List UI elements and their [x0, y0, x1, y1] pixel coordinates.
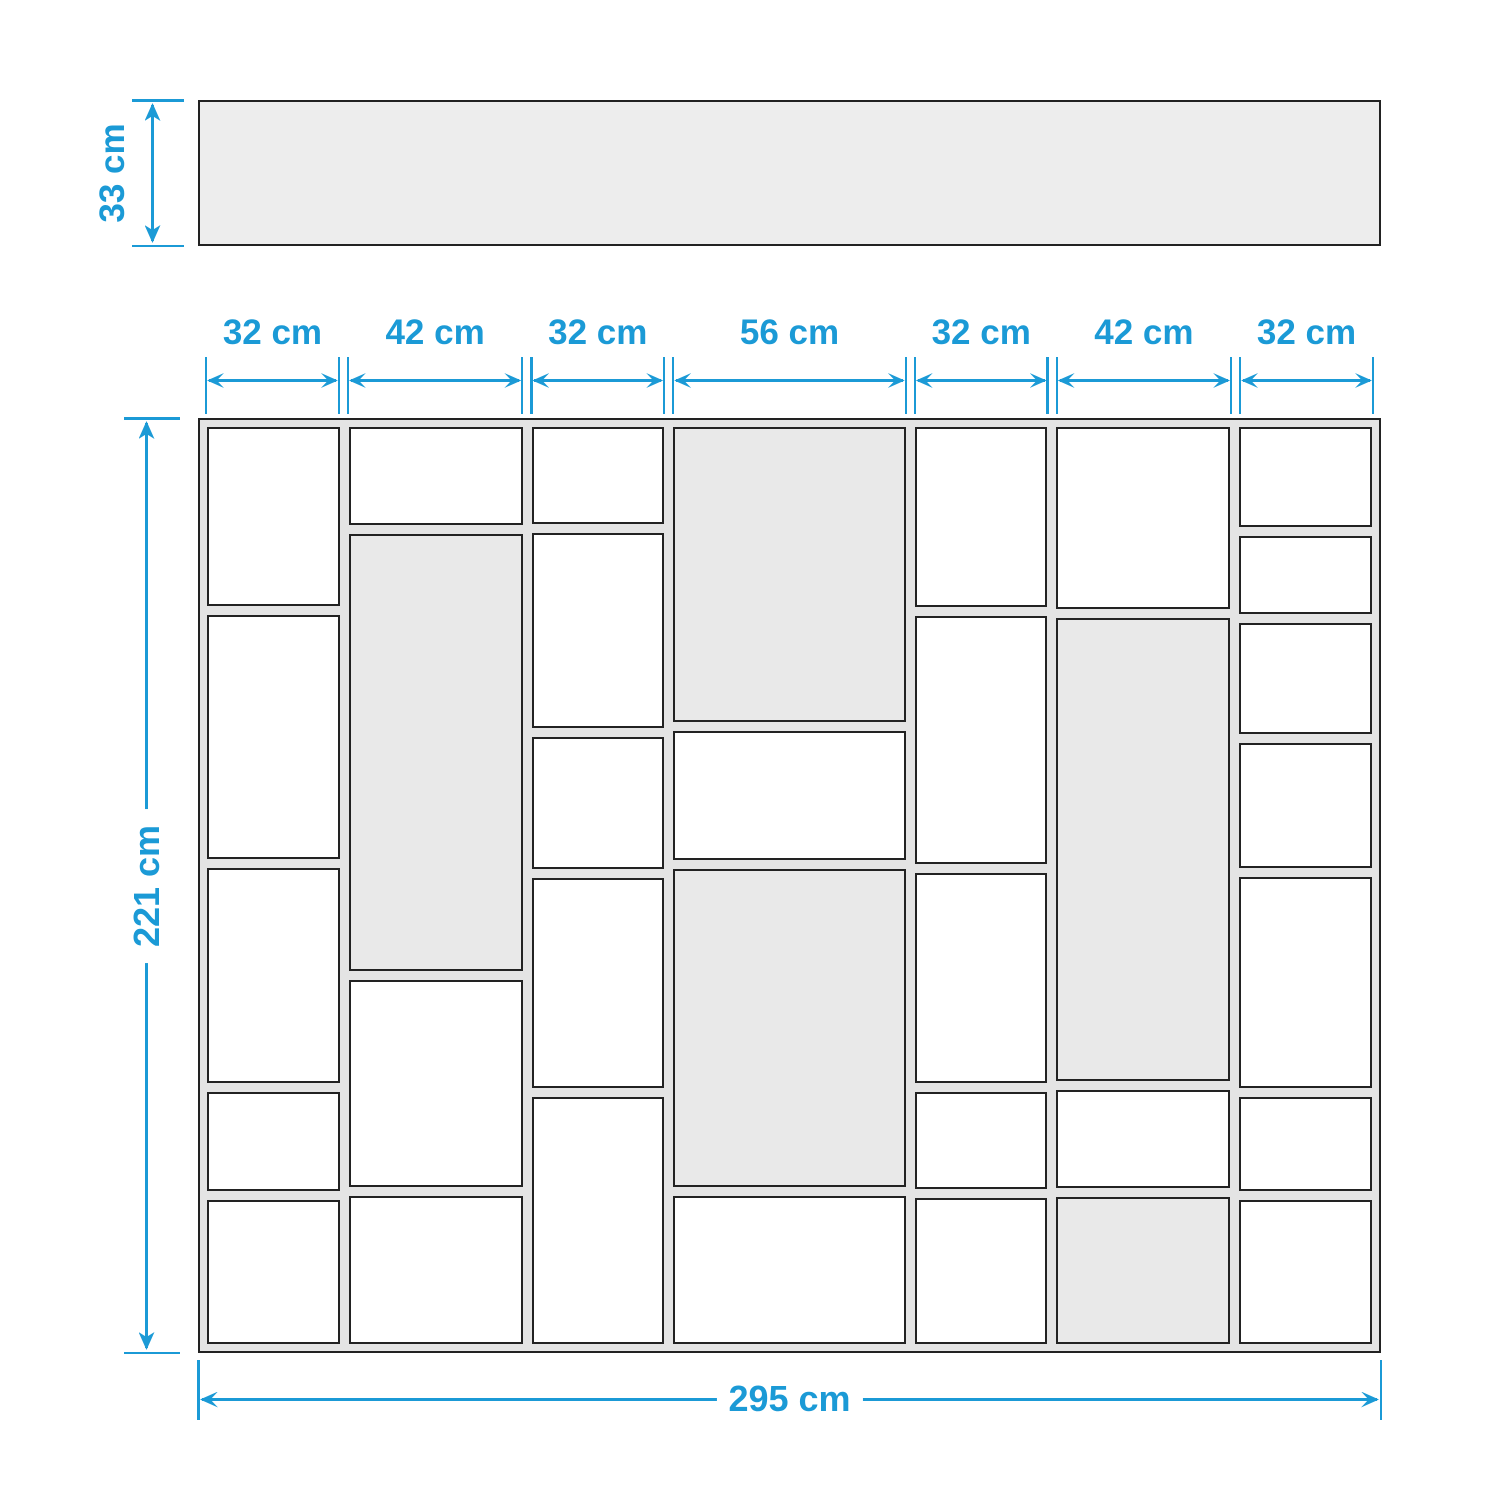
shelf-cell — [349, 427, 523, 525]
shelf-cell — [915, 873, 1048, 1083]
column-width-label: 32 cm — [1240, 313, 1373, 353]
dim-line — [351, 379, 519, 382]
dim-tick-right — [1380, 1360, 1383, 1420]
column-width-label: 56 cm — [673, 313, 906, 353]
shelf-cell — [673, 1196, 905, 1344]
dim-line — [151, 105, 154, 241]
dim-tick-left — [672, 357, 674, 414]
column-width-label: 42 cm — [1057, 313, 1231, 353]
dim-tick-left — [197, 1360, 200, 1420]
shelf-cell — [1056, 1090, 1230, 1188]
dim-tick-right — [1230, 357, 1232, 414]
height-dimension: 221 cm — [118, 418, 182, 1353]
shelf-column — [673, 427, 905, 1344]
shelf-cell — [1239, 1097, 1372, 1191]
shelf-cell — [532, 1097, 665, 1344]
dim-tick-bottom — [124, 1352, 180, 1355]
dim-tick-left — [1056, 357, 1058, 414]
shelf-cell-shaded — [673, 427, 905, 722]
column-dimension-span: 42 cm — [348, 313, 522, 414]
height-label: 221 cm — [126, 808, 168, 962]
column-width-label: 42 cm — [348, 313, 522, 353]
depth-dimension: 33 cm — [128, 100, 184, 246]
shelf-cell — [1239, 427, 1372, 527]
shelf-cell — [207, 1200, 340, 1344]
shelf-cell — [915, 616, 1048, 864]
dim-line — [209, 379, 336, 382]
dim-tick-right — [663, 357, 665, 414]
top-view-panel — [198, 100, 1381, 246]
shelf-cell — [532, 427, 665, 524]
shelf-cell — [1239, 623, 1372, 733]
shelf-cell — [915, 1092, 1048, 1189]
column-dimension-span: 56 cm — [673, 313, 906, 414]
shelf-cell — [1239, 536, 1372, 615]
dimension-diagram-page: { "diagram": { "colors": { "accent": "#1… — [0, 0, 1500, 1500]
dim-tick-right — [338, 357, 340, 414]
shelf-cell — [1239, 743, 1372, 868]
shelf-column — [532, 427, 665, 1344]
shelf-column — [1056, 427, 1230, 1344]
dim-line — [918, 379, 1045, 382]
width-label: 295 cm — [716, 1378, 862, 1420]
dim-tick-left — [530, 357, 532, 414]
dim-tick-top — [124, 417, 180, 420]
shelf-cell — [915, 1198, 1048, 1344]
column-dimension-span: 32 cm — [531, 313, 664, 414]
column-width-label: 32 cm — [915, 313, 1048, 353]
dim-tick-right — [905, 357, 907, 414]
shelf-cell-shaded — [673, 869, 905, 1187]
column-dimension-span: 42 cm — [1057, 313, 1231, 414]
shelf-column — [915, 427, 1048, 1344]
shelf-cell — [1056, 427, 1230, 609]
dim-line — [534, 379, 661, 382]
dim-tick-left — [1239, 357, 1241, 414]
column-width-label: 32 cm — [531, 313, 664, 353]
shelf-cell-shaded — [349, 534, 523, 972]
shelf-cell — [915, 427, 1048, 607]
dim-tick-left — [205, 357, 207, 414]
shelf-column — [207, 427, 340, 1344]
shelf-cell — [349, 1196, 523, 1344]
shelf-cell — [207, 427, 340, 606]
shelf-cell — [673, 731, 905, 860]
shelf-column — [349, 427, 523, 1344]
dim-tick-right — [1372, 357, 1374, 414]
shelf-cell — [1239, 1200, 1372, 1344]
shelf-cell-shaded — [1056, 1197, 1230, 1344]
shelf-cell — [1239, 877, 1372, 1088]
shelf-cell — [207, 615, 340, 859]
shelf-cell — [532, 533, 665, 728]
shelf-cell — [532, 878, 665, 1088]
dim-line — [1060, 379, 1228, 382]
depth-label: 33 cm — [93, 123, 133, 222]
dim-line — [1243, 379, 1370, 382]
dim-tick-bottom — [132, 245, 184, 248]
width-dimension: 295 cm — [198, 1360, 1381, 1424]
shelf-cell — [532, 737, 665, 868]
column-width-dimensions: 32 cm42 cm32 cm56 cm32 cm42 cm32 cm — [198, 313, 1381, 414]
shelf-cell — [207, 868, 340, 1083]
shelf-cell — [207, 1092, 340, 1191]
dim-tick-top — [132, 99, 184, 102]
column-dimension-span: 32 cm — [206, 313, 339, 414]
dim-tick-left — [347, 357, 349, 414]
shelf-cell-shaded — [1056, 618, 1230, 1081]
dim-tick-right — [1046, 357, 1048, 414]
shelf-cell — [349, 980, 523, 1186]
dim-line — [676, 379, 903, 382]
column-dimension-span: 32 cm — [1240, 313, 1373, 414]
dim-tick-left — [914, 357, 916, 414]
column-width-label: 32 cm — [206, 313, 339, 353]
shelf-front-view — [198, 418, 1381, 1353]
column-dimension-span: 32 cm — [915, 313, 1048, 414]
shelf-column — [1239, 427, 1372, 1344]
dim-tick-right — [521, 357, 523, 414]
